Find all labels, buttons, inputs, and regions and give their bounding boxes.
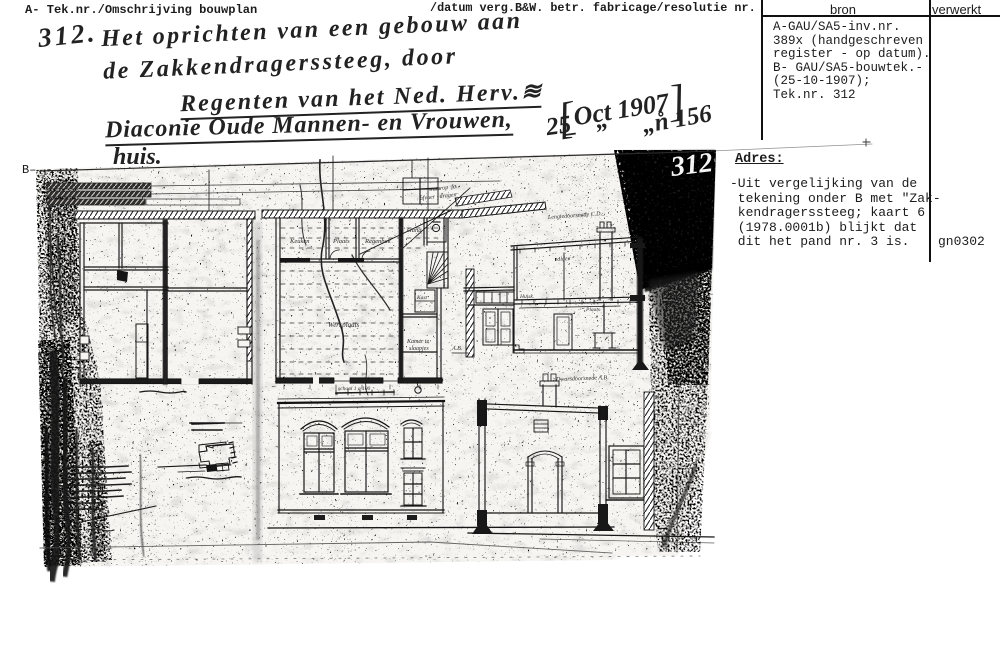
svg-text:Gang: Gang bbox=[407, 227, 422, 234]
svg-text:Plaats: Plaats bbox=[585, 307, 600, 313]
svg-text:zolder: zolder bbox=[554, 256, 571, 263]
svg-text:Werkplaats: Werkplaats bbox=[328, 321, 360, 329]
svg-text:Regenbak: Regenbak bbox=[364, 238, 391, 245]
svg-text:slaapjes: slaapjes bbox=[409, 346, 429, 352]
svg-text:B–: B– bbox=[22, 163, 36, 177]
svg-text:Ḳeuken: Ḳeuken bbox=[289, 238, 310, 245]
svg-text:Huisk.: Huisk. bbox=[519, 294, 534, 300]
svg-text:Kamer te: Kamer te bbox=[406, 339, 430, 345]
svg-text:schaal 1 a 100: schaal 1 a 100 bbox=[338, 386, 370, 392]
svg-text:Plaats: Plaats bbox=[332, 238, 350, 245]
svg-text:Kast: Kast bbox=[416, 295, 428, 301]
svg-text:A.B.: A.B. bbox=[451, 346, 462, 352]
